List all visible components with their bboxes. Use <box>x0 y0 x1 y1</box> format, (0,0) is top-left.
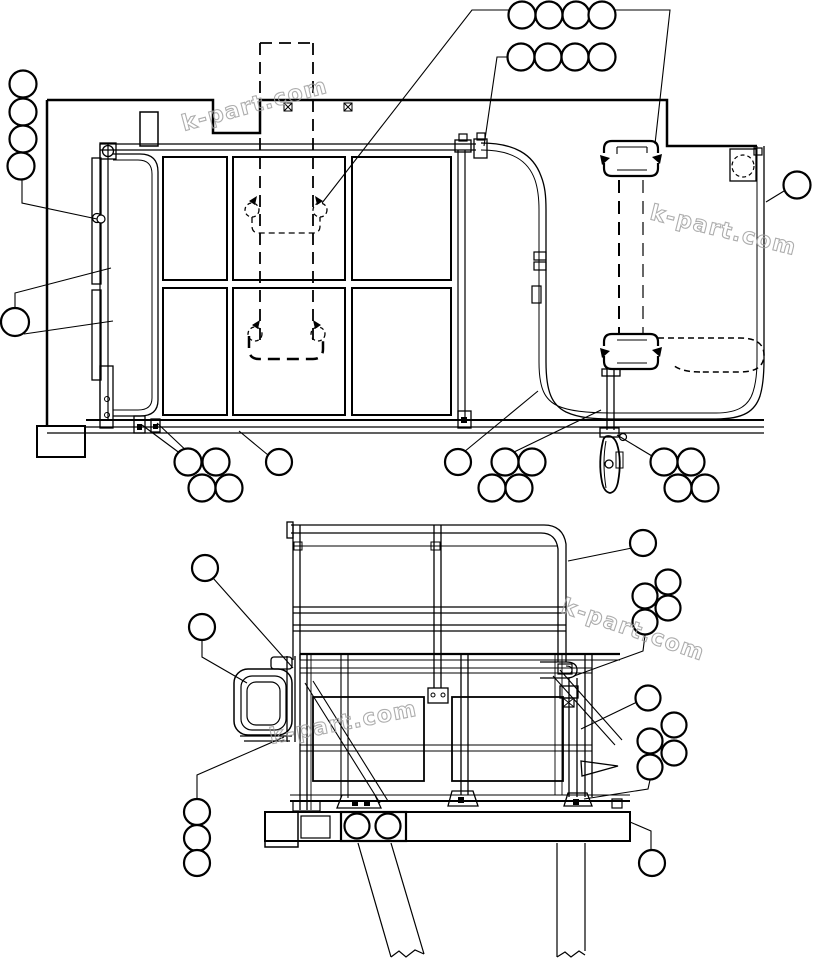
callout-balloon <box>639 850 665 876</box>
callout-balloon <box>633 584 658 609</box>
machine-outline <box>37 100 764 457</box>
callout-balloon <box>479 475 506 502</box>
leader-line <box>213 578 293 668</box>
leader-line <box>239 431 268 455</box>
leader-line <box>22 178 97 219</box>
callout-balloon <box>189 614 215 640</box>
side-view-drawing <box>184 522 687 957</box>
callout-balloon <box>492 449 519 476</box>
watermark-text: k-part.com <box>179 74 331 137</box>
leader-line <box>766 191 784 202</box>
callout-balloon <box>203 449 230 476</box>
top-view-drawing <box>1 2 811 502</box>
callout-balloon <box>562 44 589 71</box>
support-legs <box>358 843 585 957</box>
callout-balloon <box>536 2 563 29</box>
callout-balloon <box>509 2 536 29</box>
callout-balloon <box>216 475 243 502</box>
callout-balloon <box>638 755 663 780</box>
upper-bracket <box>600 141 662 333</box>
callout-balloon <box>636 686 661 711</box>
callout-balloon <box>589 44 616 71</box>
callout-balloon <box>445 449 471 475</box>
callout-balloon <box>519 449 546 476</box>
callout-balloon <box>508 44 535 71</box>
leader-line <box>630 822 651 850</box>
leader-line <box>464 391 538 452</box>
parts-diagram-canvas: k-part.comk-part.comk-part.comk-part.com <box>0 0 813 961</box>
callout-balloon <box>692 475 719 502</box>
watermark-text: k-part.com <box>267 697 419 750</box>
leader-line <box>322 10 670 203</box>
deck-and-base <box>265 791 630 847</box>
top-view-leaders <box>15 10 784 457</box>
callout-balloon <box>651 449 678 476</box>
leader-line <box>584 780 650 799</box>
left-door-panel <box>92 103 476 433</box>
callout-balloon <box>10 126 37 153</box>
watermark-text: k-part.com <box>558 594 708 667</box>
leader-line <box>568 548 632 561</box>
callout-balloon <box>656 570 681 595</box>
watermark-text: k-part.com <box>648 201 800 262</box>
callout-balloon <box>266 449 292 475</box>
callout-balloon <box>589 2 616 29</box>
callout-balloon <box>563 2 590 29</box>
callout-balloon <box>10 99 37 126</box>
callout-balloon <box>10 71 37 98</box>
callout-balloon <box>630 530 656 556</box>
leader-line <box>512 410 601 453</box>
callout-balloon <box>184 799 210 825</box>
callout-target-marker <box>97 215 105 223</box>
callout-balloon <box>665 475 692 502</box>
callout-balloon <box>784 172 811 199</box>
callout-balloon <box>8 153 35 180</box>
leader-line <box>484 57 509 146</box>
callout-balloon <box>656 596 681 621</box>
callout-balloon <box>638 729 663 754</box>
callout-balloon <box>175 449 202 476</box>
callout-balloon <box>189 475 216 502</box>
window-grid <box>163 157 451 415</box>
callout-balloon <box>662 741 687 766</box>
callout-balloon <box>506 475 533 502</box>
leader-line <box>617 435 652 456</box>
leader-line <box>15 268 111 308</box>
callout-balloon <box>184 850 210 876</box>
callout-balloon <box>192 555 218 581</box>
leader-line <box>202 640 247 683</box>
callout-balloon <box>1 308 29 336</box>
callout-balloon <box>535 44 562 71</box>
callout-balloon <box>662 713 687 738</box>
callout-balloon <box>678 449 705 476</box>
parts-diagram-page: k-part.comk-part.comk-part.comk-part.com <box>0 0 813 961</box>
watermark-layer: k-part.comk-part.comk-part.comk-part.com <box>179 74 799 750</box>
callout-balloon <box>184 825 210 851</box>
